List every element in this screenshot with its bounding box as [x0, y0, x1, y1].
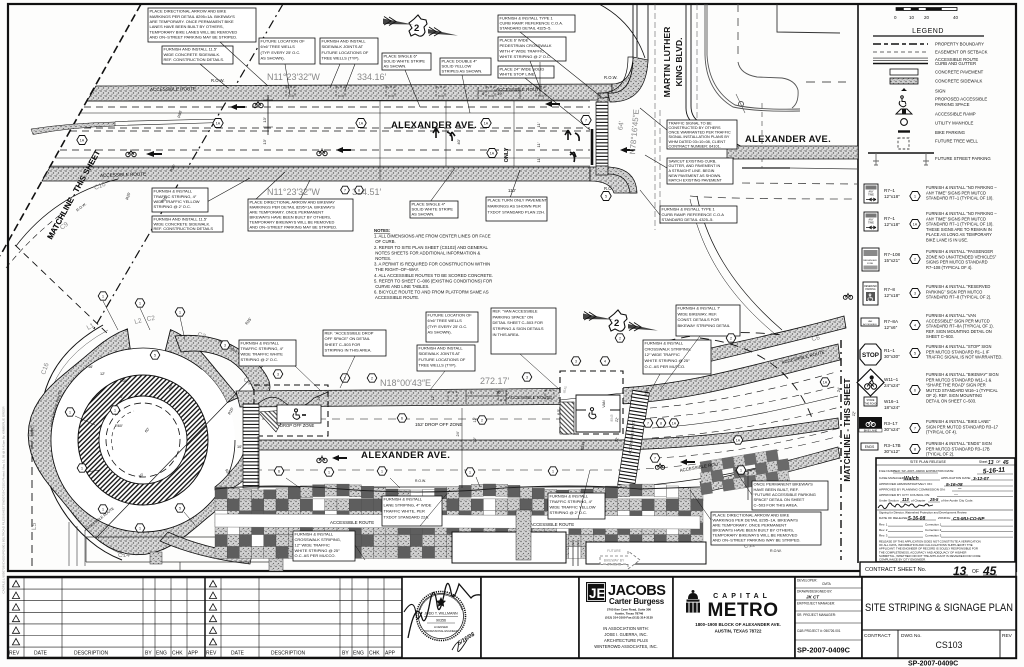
- svg-text:CMTA: CMTA: [822, 582, 832, 586]
- svg-text:IN ASSOCIATION WITH:: IN ASSOCIATION WITH:: [603, 626, 648, 631]
- svg-text:C15: C15: [29, 425, 36, 438]
- svg-text:ALEXANDER AVE.: ALEXANDER AVE.: [361, 450, 450, 461]
- svg-text:CS-MU-CO-NP: CS-MU-CO-NP: [953, 516, 985, 521]
- svg-text:Rev. 2: Rev. 2: [879, 528, 888, 532]
- svg-text:334.16′: 334.16′: [357, 72, 387, 82]
- svg-text:WINTEROWD ASSOCIATES, INC.: WINTEROWD ASSOCIATES, INC.: [594, 644, 657, 649]
- svg-text:5: 5: [914, 351, 916, 355]
- svg-text:JK CT: JK CT: [806, 595, 820, 600]
- svg-text:REV: REV: [206, 651, 217, 657]
- svg-text:6: 6: [914, 388, 916, 392]
- svg-text:ACCESSIBLE ROUTE: ACCESSIBLE ROUTE: [508, 395, 552, 400]
- svg-text:SP-2007-0409C: SP-2007-0409C: [908, 661, 958, 667]
- svg-text:Carter Burgess: Carter Burgess: [609, 597, 665, 606]
- svg-text:SHARE: SHARE: [867, 399, 875, 402]
- svg-text:ACCESSIBLE ROUTE: ACCESSIBLE ROUTE: [330, 520, 374, 525]
- svg-text:4: 4: [914, 323, 916, 327]
- svg-text:Sheet: Sheet: [979, 460, 987, 464]
- svg-text:ENG: ENG: [353, 651, 364, 657]
- svg-text:JUDD T. WILLMANN: JUDD T. WILLMANN: [424, 612, 458, 616]
- svg-text:40′: 40′: [456, 139, 461, 144]
- svg-text:FURNISH AND INSTALL 11.5′WIDE: FURNISH AND INSTALL 11.5′WIDE CONCRETE S…: [154, 217, 214, 232]
- svg-text:APP: APP: [385, 651, 396, 657]
- svg-text:C2: C2: [146, 315, 156, 323]
- svg-text:3: 3: [914, 291, 916, 295]
- svg-text:W11–124″x24″: W11–124″x24″: [884, 377, 900, 388]
- svg-text:LEGEND: LEGEND: [912, 28, 944, 35]
- svg-text:2: 2: [614, 318, 619, 329]
- svg-text:CASE MANAGER:: CASE MANAGER:: [879, 476, 905, 480]
- svg-text:1A: 1A: [484, 121, 489, 125]
- svg-text:Correction 3: Correction 3: [925, 534, 942, 538]
- svg-text:VAN: VAN: [868, 320, 873, 323]
- svg-text:TIME: TIME: [868, 194, 874, 197]
- svg-text:7: 7: [344, 188, 346, 192]
- svg-text:REV: REV: [9, 651, 20, 657]
- svg-text:PASSENGER: PASSENGER: [863, 259, 877, 262]
- svg-text:JE: JE: [589, 586, 606, 601]
- svg-text:MATCHLINE - THIS SHEET: MATCHLINE - THIS SHEET: [843, 378, 852, 481]
- svg-text:5: 5: [179, 506, 181, 510]
- svg-text:CADFILE:L:\\050729\\CADD\\PG\\: CADFILE:L:\\050729\\CADD\\PG\\001 BDLTRO…: [2, 406, 6, 594]
- svg-text:4: 4: [604, 359, 606, 363]
- svg-text:(512) 314-3100 Fax (512) 314: (512) 314-3100 Fax (512) 314-3135: [605, 616, 653, 620]
- svg-text:AUSTIN, TEXAS 78722: AUSTIN, TEXAS 78722: [715, 629, 762, 634]
- svg-text:SP-2007-0409C: SP-2007-0409C: [797, 646, 851, 655]
- svg-text:12′: 12′: [431, 395, 435, 400]
- svg-text:1A: 1A: [216, 121, 221, 125]
- svg-text:CS103: CS103: [936, 640, 963, 650]
- svg-text:10: 10: [909, 15, 915, 20]
- svg-text:40: 40: [953, 15, 959, 20]
- svg-text:DATE: DATE: [231, 651, 245, 657]
- svg-text:ACCESSIBLE: ACCESSIBLE: [863, 323, 877, 326]
- svg-text:DROP OFF ZONE: DROP OFF ZONE: [280, 423, 315, 428]
- svg-text:TIME: TIME: [868, 222, 874, 225]
- svg-text:DRAWN/DESIGNED BY:: DRAWN/DESIGNED BY:: [797, 590, 832, 594]
- svg-text:STOP: STOP: [862, 352, 879, 359]
- svg-text:7: 7: [914, 426, 916, 430]
- svg-text:DEVELOPER:: DEVELOPER:: [797, 579, 817, 583]
- svg-text:METRO: METRO: [707, 600, 778, 621]
- svg-text:25-5: 25-5: [929, 497, 939, 502]
- svg-text:ACCESSIBLE ROUTE: ACCESSIBLE ROUTE: [150, 86, 196, 92]
- svg-text:1: 1: [81, 466, 83, 470]
- svg-text:1: 1: [552, 469, 554, 473]
- svg-text:6: 6: [401, 416, 403, 420]
- svg-text:3: 3: [277, 372, 279, 376]
- svg-text:12′: 12′: [100, 372, 105, 376]
- svg-text:13′: 13′: [262, 117, 267, 122]
- svg-text:5: 5: [154, 353, 156, 357]
- svg-text:MARTIN LUTHER: MARTIN LUTHER: [662, 26, 672, 97]
- svg-text:110′: 110′: [508, 188, 516, 193]
- svg-text:C14: C14: [118, 552, 130, 559]
- svg-text:9′: 9′: [470, 390, 473, 395]
- svg-text:1: 1: [328, 470, 330, 474]
- svg-text:W16–118″x24″: W16–118″x24″: [884, 399, 900, 410]
- svg-text:152′ DROP OFF ZONE: 152′ DROP OFF ZONE: [415, 422, 463, 427]
- svg-text:Rev. 3: Rev. 3: [879, 534, 888, 538]
- svg-text:13′: 13′: [262, 139, 267, 144]
- svg-text:1A: 1A: [490, 151, 495, 155]
- svg-text:7: 7: [585, 118, 587, 122]
- svg-text:1A: 1A: [80, 138, 85, 142]
- svg-text:CONTRACT: CONTRACT: [864, 633, 891, 639]
- svg-text:of the Austin City Code.: of the Austin City Code.: [941, 499, 973, 503]
- svg-text:KING BLVD.: KING BLVD.: [674, 37, 684, 86]
- svg-text:R30′: R30′: [120, 379, 128, 383]
- svg-text:272.17′: 272.17′: [480, 376, 510, 386]
- svg-text:24′: 24′: [456, 431, 460, 436]
- svg-text:Rev. 1: Rev. 1: [879, 523, 888, 527]
- svg-text:3: 3: [526, 375, 528, 379]
- svg-text:5: 5: [605, 194, 607, 198]
- svg-text:1A: 1A: [913, 222, 918, 226]
- svg-text:CHK: CHK: [369, 651, 380, 657]
- svg-text:8545: 8545: [610, 414, 614, 421]
- svg-text:EASEMENT OR SETBACK: EASEMENT OR SETBACK: [935, 50, 988, 55]
- svg-text:BY: BY: [342, 651, 349, 657]
- svg-text:R.O.W.: R.O.W.: [415, 479, 426, 483]
- svg-text:5-16-08: 5-16-08: [908, 516, 925, 522]
- svg-text:OTHERS: OTHERS: [607, 563, 622, 567]
- svg-text:CHK: CHK: [172, 651, 183, 657]
- svg-text:6.5′: 6.5′: [557, 409, 561, 415]
- svg-text:3: 3: [575, 359, 577, 363]
- svg-text:1: 1: [914, 194, 916, 198]
- svg-text:ENDS: ENDS: [865, 445, 875, 449]
- svg-text:2: 2: [730, 336, 732, 340]
- svg-text:12′: 12′: [317, 395, 321, 400]
- svg-text:1: 1: [102, 294, 104, 298]
- svg-text:8: 8: [358, 188, 360, 192]
- svg-text:OF: OF: [972, 569, 979, 575]
- svg-text:SITE PLAN RELEASE: SITE PLAN RELEASE: [910, 460, 947, 464]
- svg-text:Under Section: Under Section: [879, 499, 899, 503]
- svg-text:C&B PROJECT #: 050726.001: C&B PROJECT #: 050726.001: [797, 629, 841, 633]
- svg-text:2: 2: [619, 336, 621, 340]
- svg-text:1A: 1A: [359, 121, 364, 125]
- svg-text:ONLY: ONLY: [504, 147, 510, 162]
- svg-text:CURB AND GUTTER: CURB AND GUTTER: [935, 61, 976, 66]
- svg-text:3: 3: [224, 343, 226, 347]
- svg-text:2: 2: [914, 257, 916, 261]
- svg-text:N18°00′43″E: N18°00′43″E: [380, 378, 431, 388]
- svg-text:N11°23′32″W: N11°23′32″W: [267, 187, 320, 197]
- svg-text:ZONE: ZONE: [867, 263, 874, 265]
- svg-text:OF: OF: [996, 460, 1000, 464]
- svg-text:1: 1: [139, 526, 141, 530]
- svg-text:1: 1: [740, 468, 742, 472]
- svg-text:DATE: DATE: [34, 651, 48, 657]
- svg-text:10′: 10′: [237, 445, 242, 449]
- svg-text:APPLICATION DATE:: APPLICATION DATE:: [941, 476, 971, 480]
- svg-text:ER/PROJECT MANAGER:: ER/PROJECT MANAGER:: [797, 602, 835, 606]
- svg-text:PARKING: PARKING: [865, 288, 875, 291]
- svg-text:DESCRIPTION: DESCRIPTION: [74, 651, 109, 657]
- svg-text:CONCRETE SIDEWALK: CONCRETE SIDEWALK: [935, 79, 982, 84]
- svg-text:BIKE LANE: BIKE LANE: [864, 429, 878, 433]
- svg-text:APPROVED ADMINISTRATIVELY ON:: APPROVED ADMINISTRATIVELY ON:: [879, 482, 933, 486]
- svg-text:CONTRACT SHEET No.: CONTRACT SHEET No.: [865, 567, 927, 573]
- svg-text:Correction 2: Correction 2: [925, 528, 942, 532]
- svg-text:UTILITY MANHOLE: UTILITY MANHOLE: [935, 121, 973, 126]
- svg-text:PROPERTY BOUNDARY: PROPERTY BOUNDARY: [935, 42, 984, 47]
- svg-text:1A: 1A: [736, 438, 741, 442]
- svg-text:PROFESSIONAL ENGINEER: PROFESSIONAL ENGINEER: [424, 630, 457, 633]
- svg-text:5′: 5′: [120, 395, 123, 399]
- svg-text:APP: APP: [188, 651, 199, 657]
- svg-text:PLACE DIRECTIONAL ARROW AND BI: PLACE DIRECTIONAL ARROW AND BIKEWAYMARKI…: [250, 200, 338, 230]
- svg-text:12′: 12′: [473, 437, 477, 442]
- svg-text:1: 1: [179, 310, 181, 314]
- svg-text:BIKE PARKING: BIKE PARKING: [935, 130, 966, 135]
- svg-text:1: 1: [381, 469, 383, 473]
- svg-text:8: 8: [660, 421, 662, 425]
- svg-text:Signing for Director, Water: Signing for Director, Watershed Protecti…: [879, 511, 968, 515]
- svg-text:1A: 1A: [823, 380, 828, 384]
- svg-text:19′: 19′: [496, 390, 501, 395]
- svg-text:1: 1: [69, 410, 71, 414]
- svg-text:DATE OF RELEASE:: DATE OF RELEASE:: [879, 516, 908, 520]
- svg-text:90356: 90356: [436, 619, 446, 623]
- svg-text:SITE STRIPING & SIGNAGE PLAN: SITE STRIPING & SIGNAGE PLAN: [865, 602, 1013, 614]
- svg-text:R60′: R60′: [115, 424, 123, 428]
- svg-text:BY: BY: [145, 651, 152, 657]
- svg-text:ACCESSIBLE RAMP: ACCESSIBLE RAMP: [935, 112, 976, 117]
- svg-text:3-12-07: 3-12-07: [973, 476, 989, 481]
- svg-text:113: 113: [902, 497, 909, 502]
- svg-text:SR. PROJECT MANAGER:: SR. PROJECT MANAGER:: [797, 613, 836, 617]
- svg-text:N11°23′32″W: N11°23′32″W: [267, 72, 320, 82]
- svg-text:LICENSED: LICENSED: [434, 625, 448, 629]
- svg-text:THE ROAD: THE ROAD: [865, 403, 877, 406]
- svg-text:VAN: VAN: [602, 400, 606, 408]
- svg-text:ACCESSIBLE ROUTE: ACCESSIBLE ROUTE: [530, 522, 574, 527]
- svg-text:11′: 11′: [536, 157, 541, 162]
- svg-text:CONCRETE PAVEMENT: CONCRETE PAVEMENT: [935, 70, 984, 75]
- svg-text:Correction 1: Correction 1: [925, 523, 942, 527]
- svg-text:ARCHITECTURE PLUS: ARCHITECTURE PLUS: [604, 638, 648, 643]
- svg-text:7: 7: [654, 456, 656, 460]
- svg-text:R.O.W.: R.O.W.: [604, 75, 618, 80]
- svg-text:11′: 11′: [536, 142, 541, 147]
- svg-text:FILE NUMBER: SP–2007–0409C: FILE NUMBER: SP–2007–0409C EXPIRATION DA…: [879, 469, 954, 473]
- svg-text:20: 20: [924, 15, 930, 20]
- svg-text:CAPITAL: CAPITAL: [713, 593, 771, 600]
- svg-text:R.O.W.: R.O.W.: [211, 78, 225, 83]
- svg-text:REV: REV: [1002, 633, 1013, 639]
- svg-text:11′: 11′: [536, 122, 541, 127]
- svg-text:6′: 6′: [482, 91, 485, 96]
- svg-text:7: 7: [647, 421, 649, 425]
- svg-text:1800–1900 BLOCK OF ALEXANDE: 1800–1900 BLOCK OF ALEXANDER AVE.: [695, 622, 780, 627]
- svg-text:DESCRIPTION: DESCRIPTION: [271, 651, 306, 657]
- svg-text:6: 6: [278, 469, 280, 473]
- svg-text:1: 1: [469, 470, 471, 474]
- svg-text:ZONING:: ZONING:: [938, 516, 951, 520]
- svg-text:R7–10815″x21″: R7–10815″x21″: [884, 252, 901, 263]
- svg-text:ALEXANDER AVE.: ALEXANDER AVE.: [391, 119, 477, 130]
- svg-text:PLACE TURN ONLY PAVEMENTMAR: PLACE TURN ONLY PAVEMENTMARKINGS AS SHOW…: [488, 198, 548, 215]
- svg-text:DWG No.: DWG No.: [901, 633, 922, 639]
- svg-text:R7–8A12″x6″: R7–8A12″x6″: [884, 319, 899, 330]
- svg-text:FUTURE STREET PARKING: FUTURE STREET PARKING: [935, 156, 991, 161]
- svg-text:RESERVED: RESERVED: [864, 286, 877, 288]
- svg-text:12′: 12′: [473, 417, 477, 422]
- svg-text:FURNISH AND INSTALL 11.5′WIDE: FURNISH AND INSTALL 11.5′WIDE CONCRETE S…: [164, 47, 225, 62]
- svg-text:2: 2: [481, 418, 483, 422]
- svg-text:of Chapter: of Chapter: [911, 499, 925, 503]
- svg-text:8: 8: [914, 447, 916, 451]
- svg-text:R3–17B30″x12″: R3–17B30″x12″: [884, 443, 901, 454]
- svg-text:2: 2: [414, 23, 419, 34]
- svg-text:FUTURE TREE WELL: FUTURE TREE WELL: [935, 139, 979, 144]
- svg-text:1: 1: [102, 507, 104, 511]
- svg-text:FUTURE: FUTURE: [607, 549, 621, 553]
- svg-text:19′: 19′: [497, 91, 502, 96]
- svg-text:1: 1: [114, 408, 116, 412]
- svg-text:1A: 1A: [672, 421, 677, 425]
- svg-text:ENG: ENG: [156, 651, 167, 657]
- svg-text:2: 2: [371, 376, 373, 380]
- svg-text:SIGN: SIGN: [935, 89, 946, 94]
- svg-text:PLACE DIRECTIONAL ARROW AND: PLACE DIRECTIONAL ARROW AND BIKEWARKINGS…: [713, 513, 801, 543]
- svg-text:R.O.W.: R.O.W.: [770, 549, 782, 553]
- svg-text:FURNISH & INSTALLTRAFFIC ST: FURNISH & INSTALLTRAFFIC STRIPING, 4″WID…: [241, 341, 284, 362]
- svg-text:16′: 16′: [88, 365, 93, 369]
- svg-text:1: 1: [139, 301, 141, 305]
- svg-text:ALEXANDER AVE.: ALEXANDER AVE.: [745, 133, 831, 144]
- svg-text:JOSE I. GUERRA, INC.: JOSE I. GUERRA, INC.: [604, 632, 647, 637]
- svg-text:APPROVED BY PLANNING COMMISSIO: APPROVED BY PLANNING COMMISSION ON:: [879, 488, 945, 492]
- svg-text:FURNISH & INSTALL “RESERVED: FURNISH & INSTALL “RESERVEDPARKING” SIGN…: [926, 284, 991, 300]
